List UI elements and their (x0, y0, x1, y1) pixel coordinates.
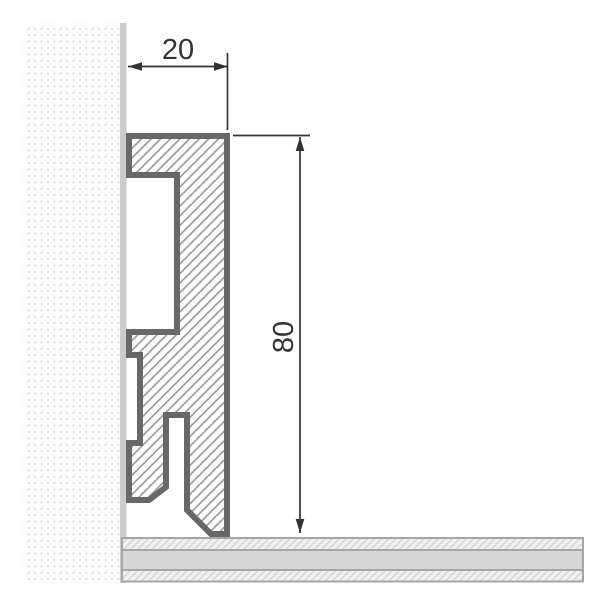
width-dimension-label: 20 (162, 34, 194, 66)
skirting-profile-drawing: 20 80 (0, 0, 604, 604)
floor-middle-solid-layer (122, 550, 583, 570)
arrow-right-icon (214, 62, 228, 71)
arrow-down-icon (296, 519, 305, 533)
arrow-left-icon (128, 62, 142, 71)
floor-bottom-hatch-layer (122, 570, 583, 582)
arrow-up-icon (296, 137, 305, 151)
floor-section (122, 538, 583, 582)
technical-drawing-canvas: 20 80 (0, 0, 604, 604)
wall-dotted-texture (23, 23, 120, 583)
floor-top-hatch-layer (122, 538, 583, 550)
height-dimension-label: 80 (268, 321, 300, 353)
wall-section (23, 23, 127, 583)
wall-surface-strip (120, 23, 127, 583)
skirting-profile-outline (129, 136, 227, 534)
